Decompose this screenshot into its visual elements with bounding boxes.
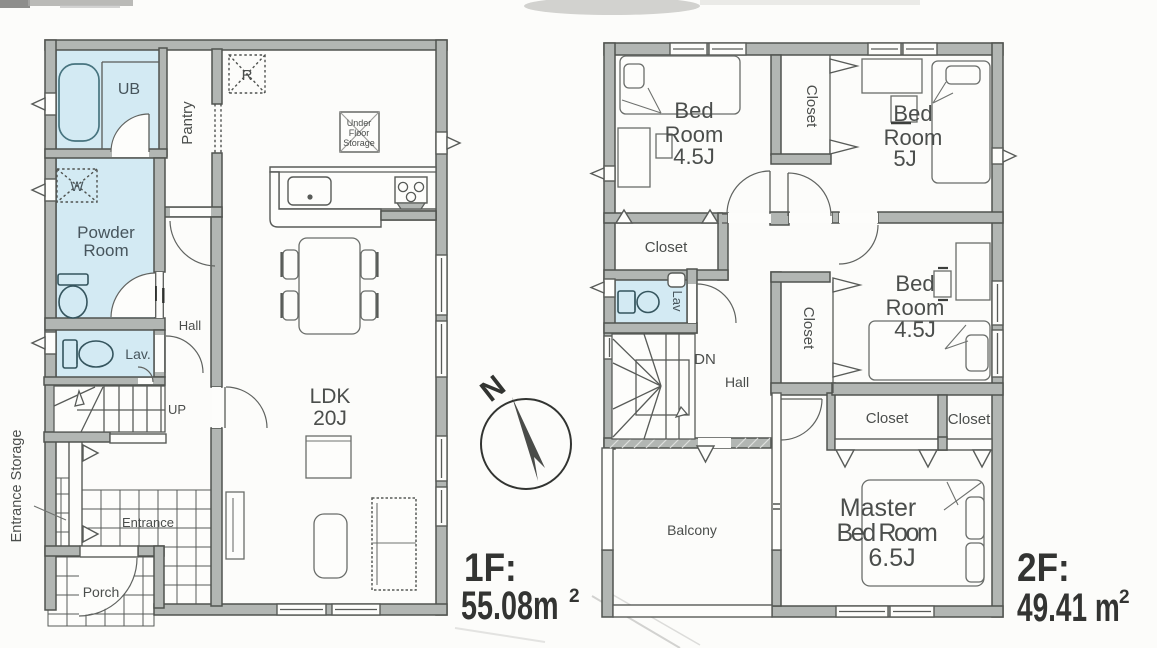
svg-text:Hall: Hall bbox=[179, 318, 202, 333]
svg-text:LDK: LDK bbox=[310, 385, 351, 408]
svg-text:2: 2 bbox=[1119, 587, 1130, 608]
svg-text:Room: Room bbox=[83, 241, 128, 260]
svg-text:Lav.: Lav. bbox=[125, 346, 150, 362]
svg-text:55.08m: 55.08m bbox=[461, 583, 559, 628]
svg-text:Closet: Closet bbox=[948, 411, 991, 428]
svg-text:Entrance: Entrance bbox=[122, 515, 174, 530]
svg-text:Bed: Bed bbox=[895, 271, 934, 296]
svg-text:2: 2 bbox=[569, 586, 580, 607]
svg-text:Storage: Storage bbox=[343, 138, 375, 148]
svg-text:Closet: Closet bbox=[803, 85, 820, 128]
svg-text:Closet: Closet bbox=[645, 239, 688, 256]
svg-text:Bed Room: Bed Room bbox=[837, 519, 937, 547]
svg-text:Bed: Bed bbox=[674, 98, 713, 123]
svg-text:Lav: Lav bbox=[670, 291, 685, 312]
svg-text:R: R bbox=[242, 67, 253, 84]
svg-text:2F:: 2F: bbox=[1017, 545, 1070, 590]
svg-text:Powder: Powder bbox=[77, 223, 135, 242]
svg-text:Master: Master bbox=[840, 494, 916, 522]
svg-text:Pantry: Pantry bbox=[179, 101, 196, 145]
svg-text:Porch: Porch bbox=[83, 584, 120, 600]
svg-text:DN: DN bbox=[694, 351, 716, 368]
svg-text:4.5J: 4.5J bbox=[673, 144, 715, 169]
svg-text:Closet: Closet bbox=[800, 307, 817, 350]
svg-text:UB: UB bbox=[118, 81, 140, 98]
svg-text:W: W bbox=[70, 178, 84, 194]
svg-text:Balcony: Balcony bbox=[667, 522, 717, 538]
svg-text:5J: 5J bbox=[893, 146, 916, 171]
svg-text:4.5J: 4.5J bbox=[894, 317, 936, 342]
svg-text:Hall: Hall bbox=[725, 374, 749, 390]
svg-text:Under: Under bbox=[347, 118, 372, 128]
svg-text:20J: 20J bbox=[313, 407, 347, 430]
svg-text:Bed: Bed bbox=[893, 101, 932, 126]
svg-text:6.5J: 6.5J bbox=[868, 544, 915, 572]
svg-text:Entrance Storage: Entrance Storage bbox=[9, 430, 25, 543]
svg-text:UP: UP bbox=[168, 402, 186, 417]
svg-text:Closet: Closet bbox=[866, 410, 909, 427]
svg-text:49.41 m: 49.41 m bbox=[1017, 586, 1120, 630]
svg-text:Floor: Floor bbox=[349, 128, 370, 138]
